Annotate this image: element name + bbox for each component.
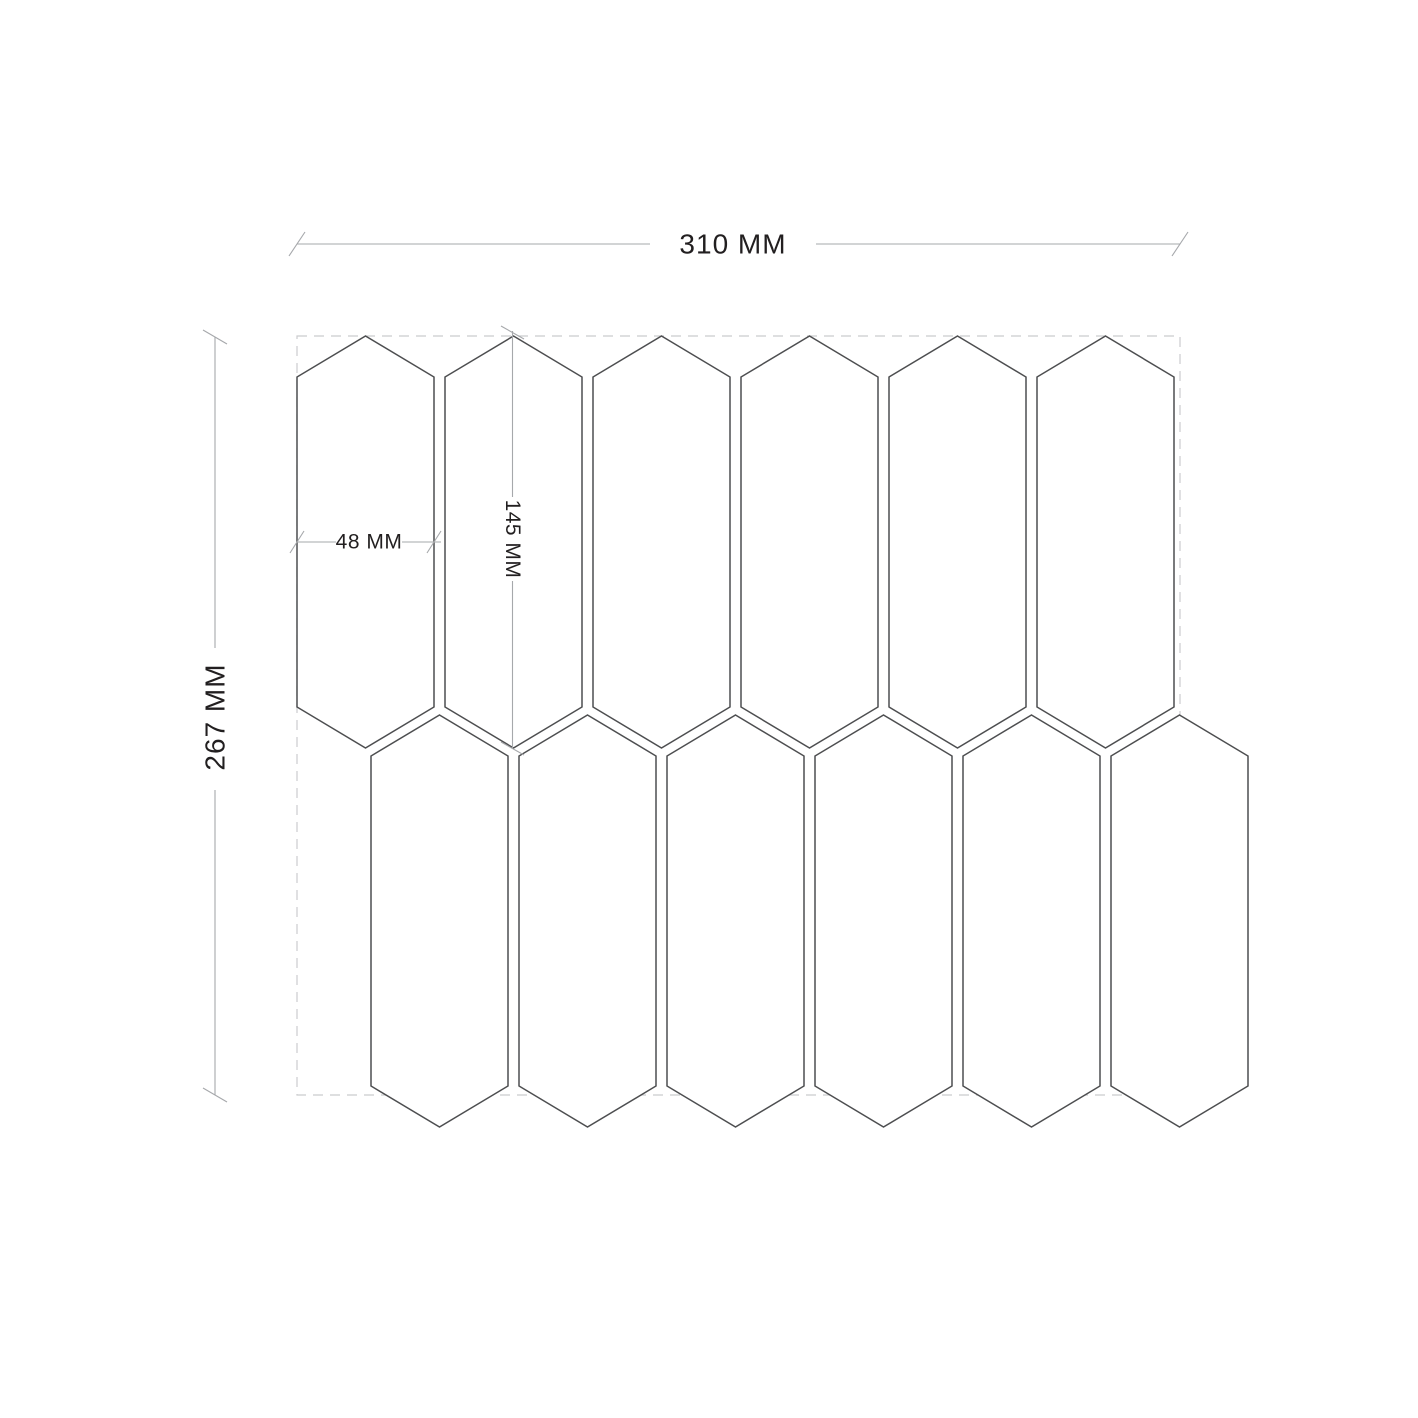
picket-tile-r2-c6: [1111, 715, 1248, 1127]
picket-tile-r1-c4: [741, 336, 878, 748]
picket-tile-r1-c5: [889, 336, 1026, 748]
sheet-width-label: 310 MM: [679, 229, 786, 260]
picket-tile-r2-c3: [667, 715, 804, 1127]
picket-tile-group: [297, 336, 1248, 1127]
tile-width-label: 48 MM: [336, 531, 403, 554]
tile-dimension-diagram: 310 MM 267 MM 48 MM 145 MM: [0, 0, 1418, 1418]
picket-tile-r1-c6: [1037, 336, 1174, 748]
tile-height-label: 145 MM: [501, 500, 524, 579]
picket-tile-r1-c3: [593, 336, 730, 748]
picket-tile-r2-c4: [815, 715, 952, 1127]
sheet-height-dimension: 267 MM: [200, 330, 231, 1102]
picket-tile-r2-c2: [519, 715, 656, 1127]
diagram-svg: 310 MM 267 MM 48 MM 145 MM: [0, 0, 1418, 1418]
picket-tile-r2-c5: [963, 715, 1100, 1127]
sheet-height-label: 267 MM: [200, 663, 231, 770]
picket-tile-r2-c1: [371, 715, 508, 1127]
sheet-width-dimension: 310 MM: [289, 229, 1188, 260]
